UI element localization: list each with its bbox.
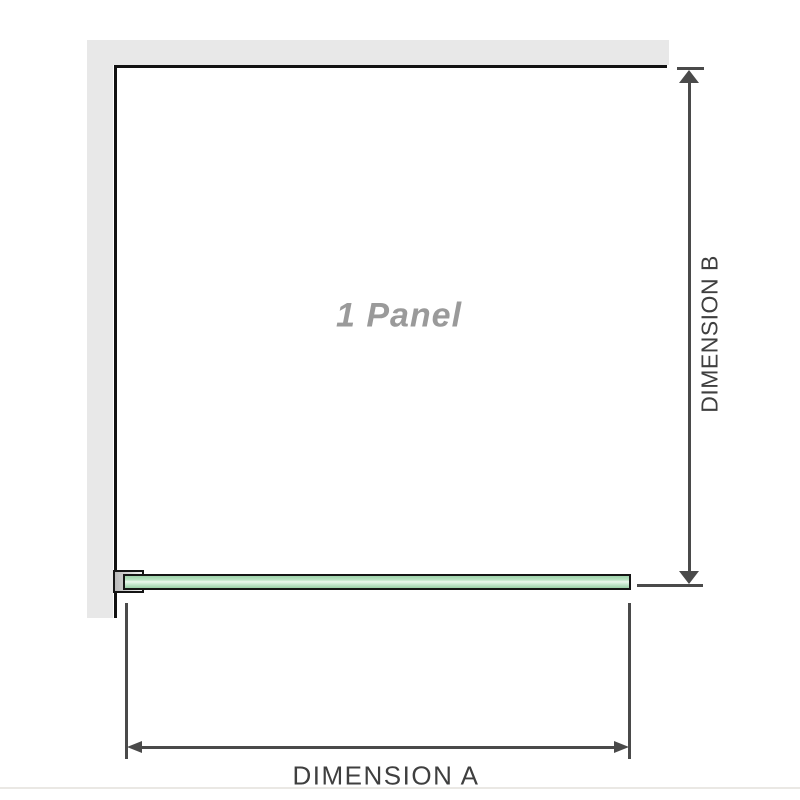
dimension-a-extension-left — [125, 603, 128, 759]
panel-outline-top — [114, 65, 667, 68]
wall-top — [87, 40, 669, 65]
dimension-a-arrow-left-icon — [127, 741, 142, 753]
dimension-b-extension-bottom — [637, 584, 703, 587]
dimension-b-arrow-down-icon — [679, 571, 699, 584]
panel-count-label: 1 Panel — [336, 297, 462, 336]
dimension-b-label: DIMENSION B — [697, 255, 724, 413]
dimension-b-arrow-up-icon — [679, 70, 699, 83]
glass-panel — [123, 574, 631, 590]
panel-outline-left — [114, 65, 117, 618]
dimension-a-line — [138, 746, 620, 749]
wall-left — [87, 40, 113, 618]
dimension-a-extension-right — [628, 603, 631, 759]
dimension-b-line — [688, 78, 691, 576]
panel-dimension-diagram: 1 Panel DIMENSION B DIMENSION A — [0, 0, 800, 800]
dimension-a-arrow-right-icon — [614, 741, 629, 753]
bottom-divider — [0, 787, 800, 789]
